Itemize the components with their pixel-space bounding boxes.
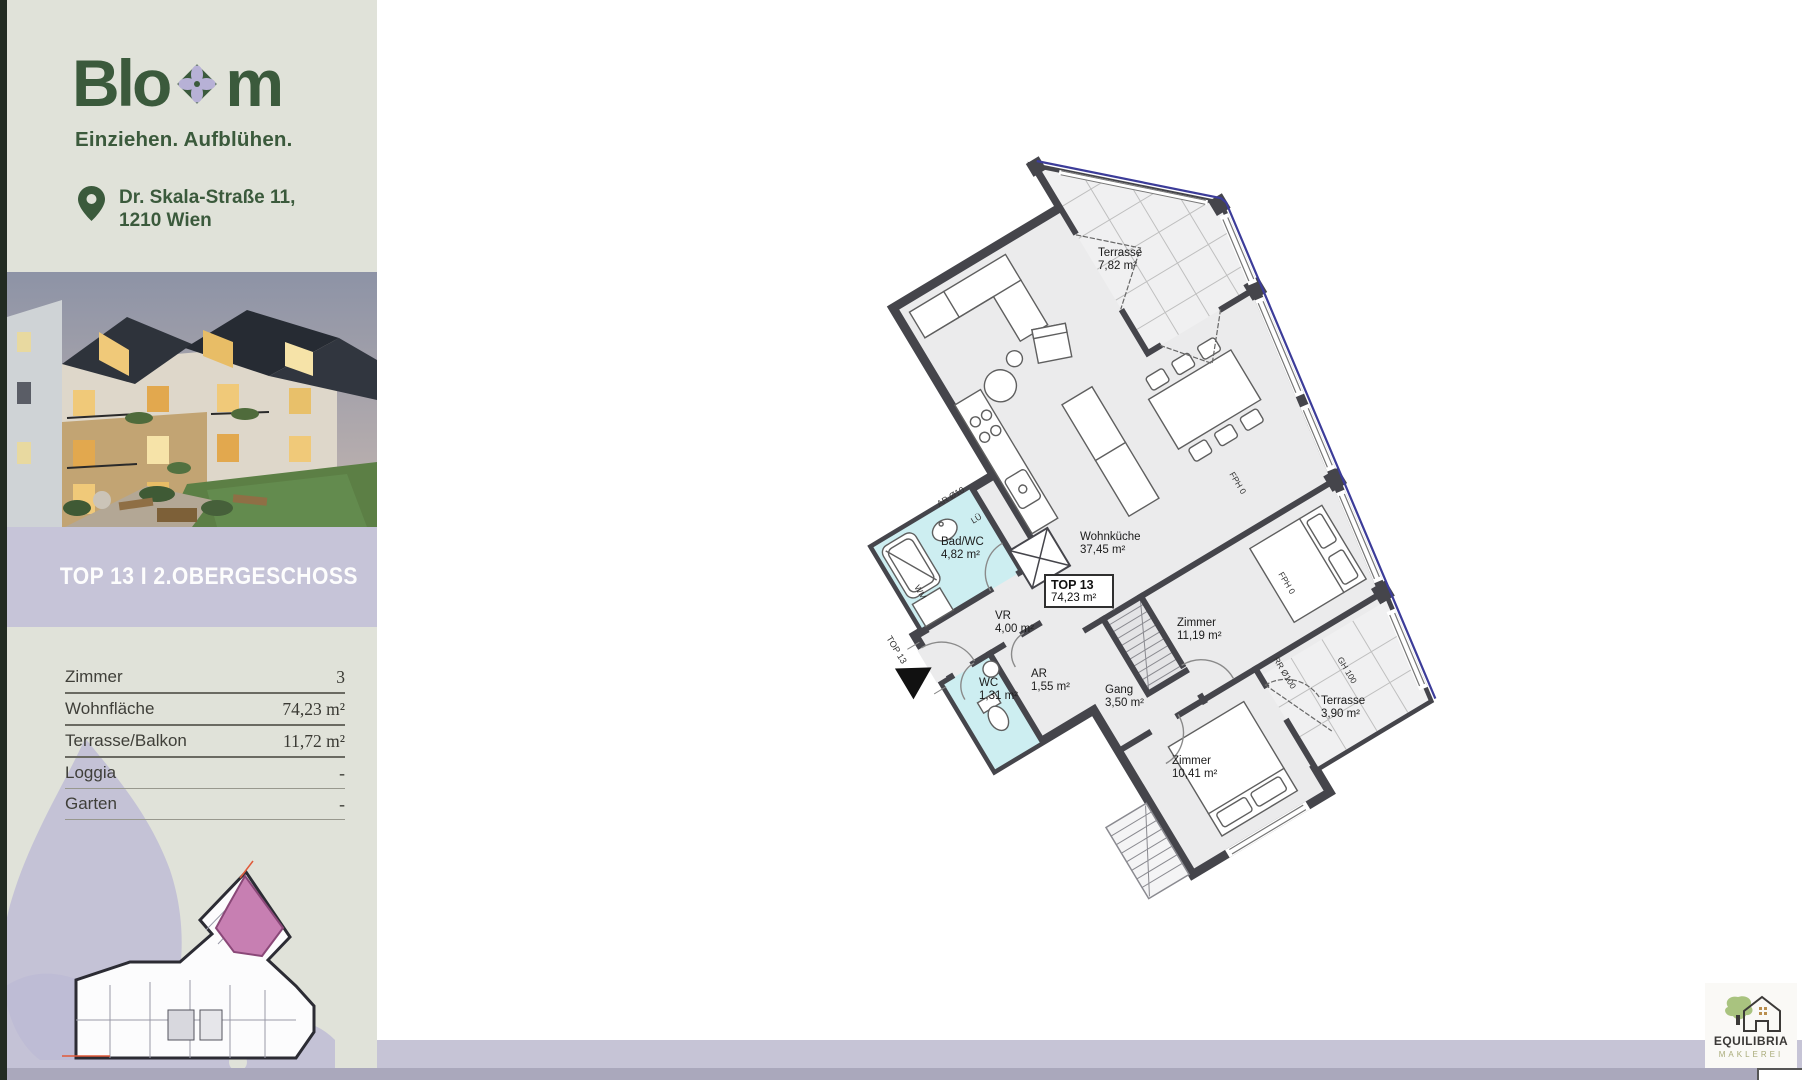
room-label-terrasse-top: Terrasse 7,82 m² (1098, 247, 1142, 273)
broker-subtitle: MAKLEREI (1719, 1050, 1783, 1059)
room-area: 3,50 m² (1105, 697, 1144, 710)
table-row: Garten - (65, 789, 345, 820)
room-name: VR (995, 610, 1034, 623)
unit-area: 74,23 m² (1051, 592, 1107, 604)
building-photo (7, 272, 377, 527)
room-area: 4,82 m² (941, 549, 984, 562)
sidebar-edge-stripe (0, 0, 7, 1080)
bloom-logo-text-pre: Blo (72, 50, 169, 116)
row-label: Wohnfläche (65, 699, 154, 719)
room-name: AR (1031, 668, 1070, 681)
room-label-wc: WC 1,31 m² (979, 677, 1018, 703)
corner-box (1757, 1068, 1802, 1080)
room-name: Zimmer (1177, 617, 1222, 630)
unit-number-box: TOP 13 74,23 m² (1044, 574, 1114, 608)
broker-name: EQUILIBRIA (1714, 1034, 1788, 1048)
table-row: Wohnfläche 74,23 m² (65, 694, 345, 726)
broker-house-tree-icon (1716, 983, 1786, 1033)
bloom-logo: Blo m (72, 50, 281, 116)
unit-banner: TOP 13 I 2.OBERGESCHOSS (0, 527, 377, 627)
room-name: Terrasse (1098, 247, 1142, 260)
unit-details-table: Zimmer 3 Wohnfläche 74,23 m² Terrasse/Ba… (65, 662, 345, 820)
table-row: Zimmer 3 (65, 662, 345, 694)
room-area: 3,90 m² (1321, 708, 1365, 721)
room-area: 7,82 m² (1098, 260, 1142, 273)
row-value: 11,72 m² (283, 731, 345, 752)
bloom-logo-text-post: m (225, 50, 281, 116)
room-area: 37,45 m² (1080, 544, 1141, 557)
address-block: Dr. Skala-Straße 11, 1210 Wien (78, 186, 295, 232)
room-label-terrasse-side: Terrasse 3,90 m² (1321, 695, 1365, 721)
room-label-zimmer-1: Zimmer 11,19 m² (1177, 617, 1222, 643)
room-area: 4,00 m² (995, 623, 1034, 636)
room-area: 11,19 m² (1177, 630, 1222, 643)
room-area: 1,31 m² (979, 690, 1018, 703)
row-label: Zimmer (65, 667, 123, 687)
room-label-ar: AR 1,55 m² (1031, 668, 1070, 694)
unit-banner-title: TOP 13 I 2.OBERGESCHOSS (0, 563, 358, 591)
table-row: Terrasse/Balkon 11,72 m² (65, 726, 345, 758)
unit-title: TOP 13 (1051, 578, 1107, 592)
room-name: Bad/WC (941, 536, 984, 549)
room-name: Zimmer (1172, 755, 1217, 768)
floor-overview-map (50, 860, 330, 1080)
row-value: 74,23 m² (282, 699, 345, 720)
floorplan-drawing (840, 140, 1460, 920)
room-area: 10,41 m² (1172, 768, 1217, 781)
row-label: Loggia (65, 763, 116, 783)
location-pin-icon (78, 186, 105, 221)
row-label: Garten (65, 794, 117, 814)
room-label-bad-wc: Bad/WC 4,82 m² (941, 536, 984, 562)
address-line2: 1210 Wien (119, 209, 295, 232)
room-name: WC (979, 677, 1018, 690)
room-label-gang: Gang 3,50 m² (1105, 684, 1144, 710)
expose-page: Blo m Einziehen. Aufblühen. Dr. Skala-St… (0, 0, 1802, 1080)
room-label-vr: VR 4,00 m² (995, 610, 1034, 636)
brand-tagline: Einziehen. Aufblühen. (75, 128, 293, 152)
room-area: 1,55 m² (1031, 681, 1070, 694)
broker-logo: EQUILIBRIA MAKLEREI (1705, 983, 1797, 1068)
row-value: 3 (336, 667, 345, 688)
row-value: - (339, 763, 345, 784)
sidebar: Blo m Einziehen. Aufblühen. Dr. Skala-St… (0, 0, 377, 1080)
row-value: - (339, 794, 345, 815)
table-row: Loggia - (65, 758, 345, 789)
room-name: Gang (1105, 684, 1144, 697)
row-label: Terrasse/Balkon (65, 731, 187, 751)
room-label-wohnkueche: Wohnküche 37,45 m² (1080, 531, 1141, 557)
bloom-flower-icon (170, 57, 224, 111)
room-label-zimmer-2: Zimmer 10,41 m² (1172, 755, 1217, 781)
address-line1: Dr. Skala-Straße 11, (119, 186, 295, 209)
room-name: Terrasse (1321, 695, 1365, 708)
footer-strip-light (377, 1040, 1802, 1068)
room-name: Wohnküche (1080, 531, 1141, 544)
